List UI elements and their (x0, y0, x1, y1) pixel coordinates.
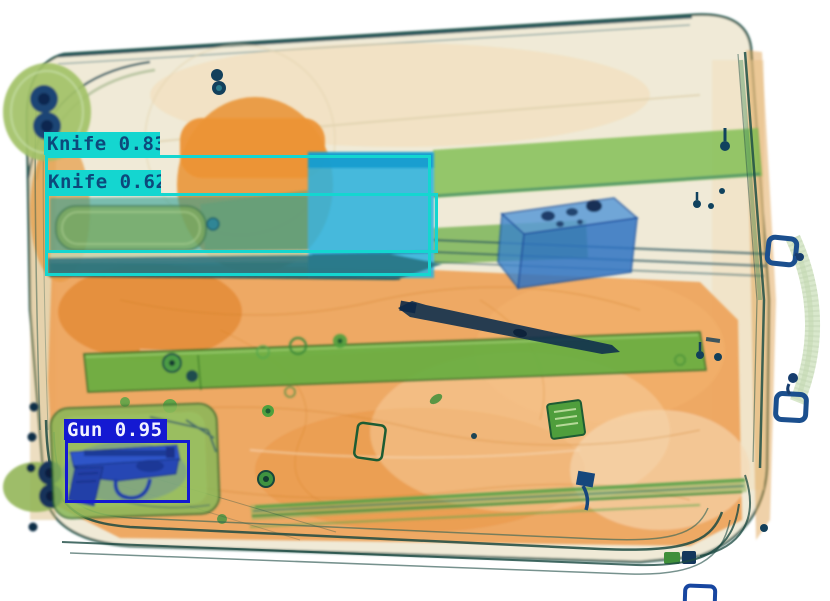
detection-label-gun-2: Gun 0.95 (64, 419, 167, 440)
detection-label-knife-1: Knife 0.62 (45, 170, 161, 193)
detection-box-knife-1 (46, 193, 438, 253)
detection-box-gun-2 (65, 440, 190, 503)
detection-label-knife-0: Knife 0.83 (44, 132, 160, 155)
detection-overlay-layer: Knife 0.83Knife 0.62Gun 0.95 (0, 0, 830, 601)
xray-scan-viewport: Knife 0.83Knife 0.62Gun 0.95 (0, 0, 830, 601)
